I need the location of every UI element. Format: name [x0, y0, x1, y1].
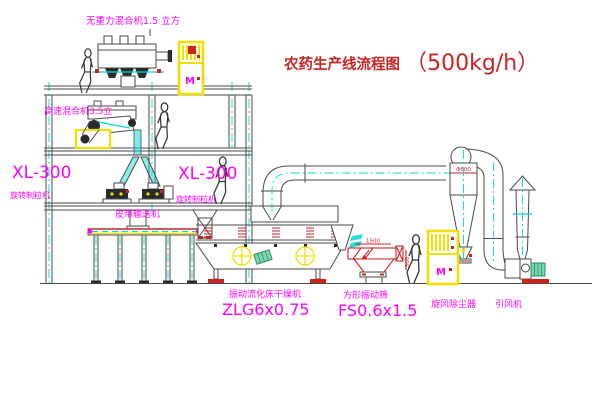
- dryer-springs: [204, 228, 339, 237]
- label-granulator-name-mid: 旋转制粒机: [176, 194, 216, 204]
- induced-draft-fan: [505, 259, 549, 284]
- process-flow-diagram: M: [0, 0, 600, 403]
- fluid-bed-dryer: [193, 206, 363, 283]
- title-text: 农药生产线流程图: [283, 55, 400, 73]
- label-top-mixer: 无重力混合机1.5 立方: [86, 15, 180, 27]
- diagram-title: 农药生产线流程图 （500kg/h）: [283, 51, 539, 76]
- label-dryer-model: ZLG6x0.75: [222, 300, 310, 319]
- label-sieve-name: 方形振动筛: [343, 289, 388, 301]
- label-cyclone-name: 旋风除尘器: [431, 298, 476, 310]
- motor-symbol: M: [185, 76, 195, 87]
- label-granulator-model-left: XL-300: [12, 163, 71, 183]
- motor-symbol: M: [436, 267, 446, 278]
- belt-conveyor: [88, 229, 200, 283]
- sieve-length-dim: 1500: [366, 239, 380, 245]
- gravity-free-mixer: [92, 29, 172, 87]
- label-sieve-model: FS0.6x1.5: [338, 301, 417, 320]
- person-icon: [156, 103, 169, 149]
- vibration-motor-left: [233, 247, 251, 265]
- granulator-left: [103, 183, 131, 203]
- v-chute: [118, 157, 160, 186]
- label-granulator-model-mid: XL-300: [178, 164, 237, 184]
- vibration-motor-right: [296, 247, 314, 265]
- label-granulator-name-left: 旋转制粒机: [10, 190, 50, 200]
- label-belt-conveyor: 皮带输送机: [115, 208, 160, 220]
- mixer-discharge-pipe: [134, 130, 141, 155]
- flow-diagram-canvas: M: [0, 0, 600, 403]
- exhaust-duct: [261, 164, 459, 213]
- label-floor2-mixer: 高速混合机3.5立: [44, 105, 112, 117]
- label-dryer-name: 振动流化床干燥机: [229, 288, 301, 300]
- control-cabinet-ground: M: [428, 231, 458, 284]
- granulator-right: [139, 183, 173, 203]
- conveyor-legs: [91, 235, 197, 283]
- title-capacity: （500kg/h）: [405, 51, 539, 76]
- control-cabinet-top: M: [179, 42, 203, 94]
- label-fan-name: 引风机: [495, 298, 522, 310]
